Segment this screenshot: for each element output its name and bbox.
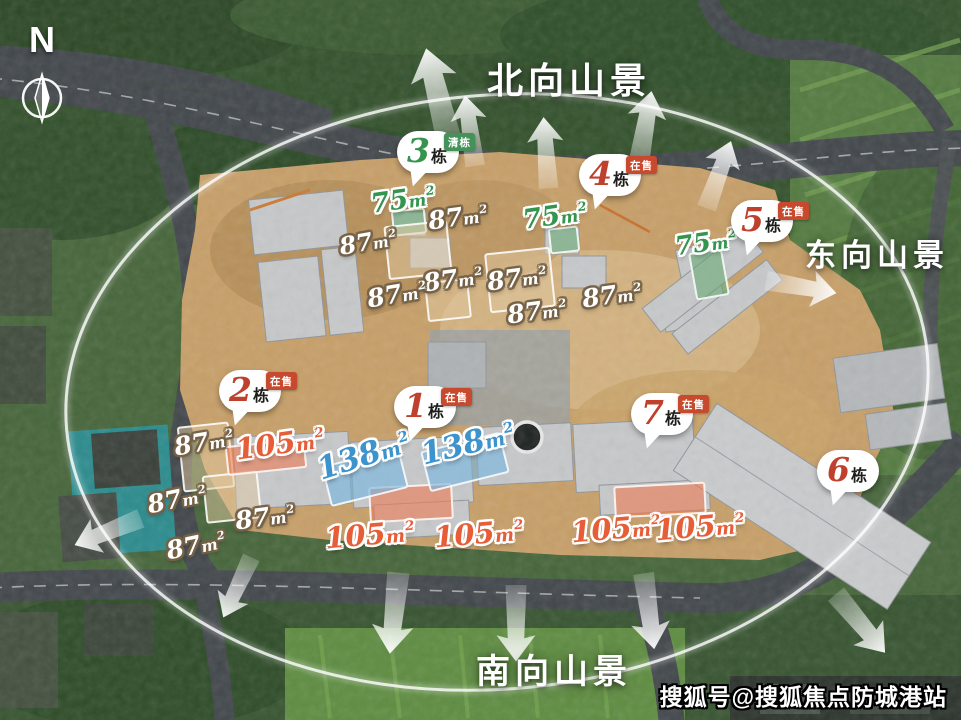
building-number: 6: [827, 450, 850, 489]
east-view-label: 东向山景: [805, 230, 949, 275]
building-bubble-6: 6栋: [817, 450, 879, 492]
watermark: 搜狐号@搜狐焦点防城港站: [660, 678, 947, 712]
building-bubble-4: 4栋在售: [579, 154, 641, 196]
site-plan-image: 75m275m275m287m287m287m287m287m287m287m2…: [0, 0, 961, 720]
building-number: 3: [407, 131, 430, 170]
building-bubble-3: 3栋清栋: [397, 131, 459, 173]
compass-n-label: N: [29, 22, 76, 58]
status-badge-selling: 在售: [441, 388, 472, 406]
building-dong-suffix: 栋: [253, 388, 269, 405]
north-view-label: 北向山景: [487, 52, 651, 104]
building-number: 7: [641, 393, 664, 432]
building-dong-suffix: 栋: [431, 149, 447, 166]
building-number: 1: [404, 386, 427, 425]
status-badge-clearing: 清栋: [444, 133, 475, 151]
building-bubble-2: 2栋在售: [219, 370, 281, 412]
building-bubble-5: 5栋在售: [731, 200, 793, 242]
building-dong-suffix: 栋: [665, 411, 681, 428]
building-number: 5: [741, 200, 764, 239]
building-dong-suffix: 栋: [428, 404, 444, 421]
building-bubbles-layer: 3栋清栋4栋在售5栋在售2栋在售1栋在售7栋在售6栋: [0, 0, 961, 720]
building-number: 2: [229, 370, 252, 409]
status-badge-selling: 在售: [678, 395, 709, 413]
south-view-label: 南向山景: [476, 644, 632, 693]
compass: N: [16, 22, 76, 133]
building-dong-suffix: 栋: [765, 218, 781, 235]
compass-needle-icon: [16, 58, 76, 128]
building-bubble-7: 7栋在售: [631, 393, 693, 435]
status-badge-selling: 在售: [626, 156, 657, 174]
status-badge-selling: 在售: [778, 202, 809, 220]
building-dong-suffix: 栋: [851, 468, 867, 485]
building-number: 4: [589, 154, 612, 193]
status-badge-selling: 在售: [266, 372, 297, 390]
building-dong-suffix: 栋: [613, 172, 629, 189]
building-bubble-1: 1栋在售: [394, 386, 456, 428]
